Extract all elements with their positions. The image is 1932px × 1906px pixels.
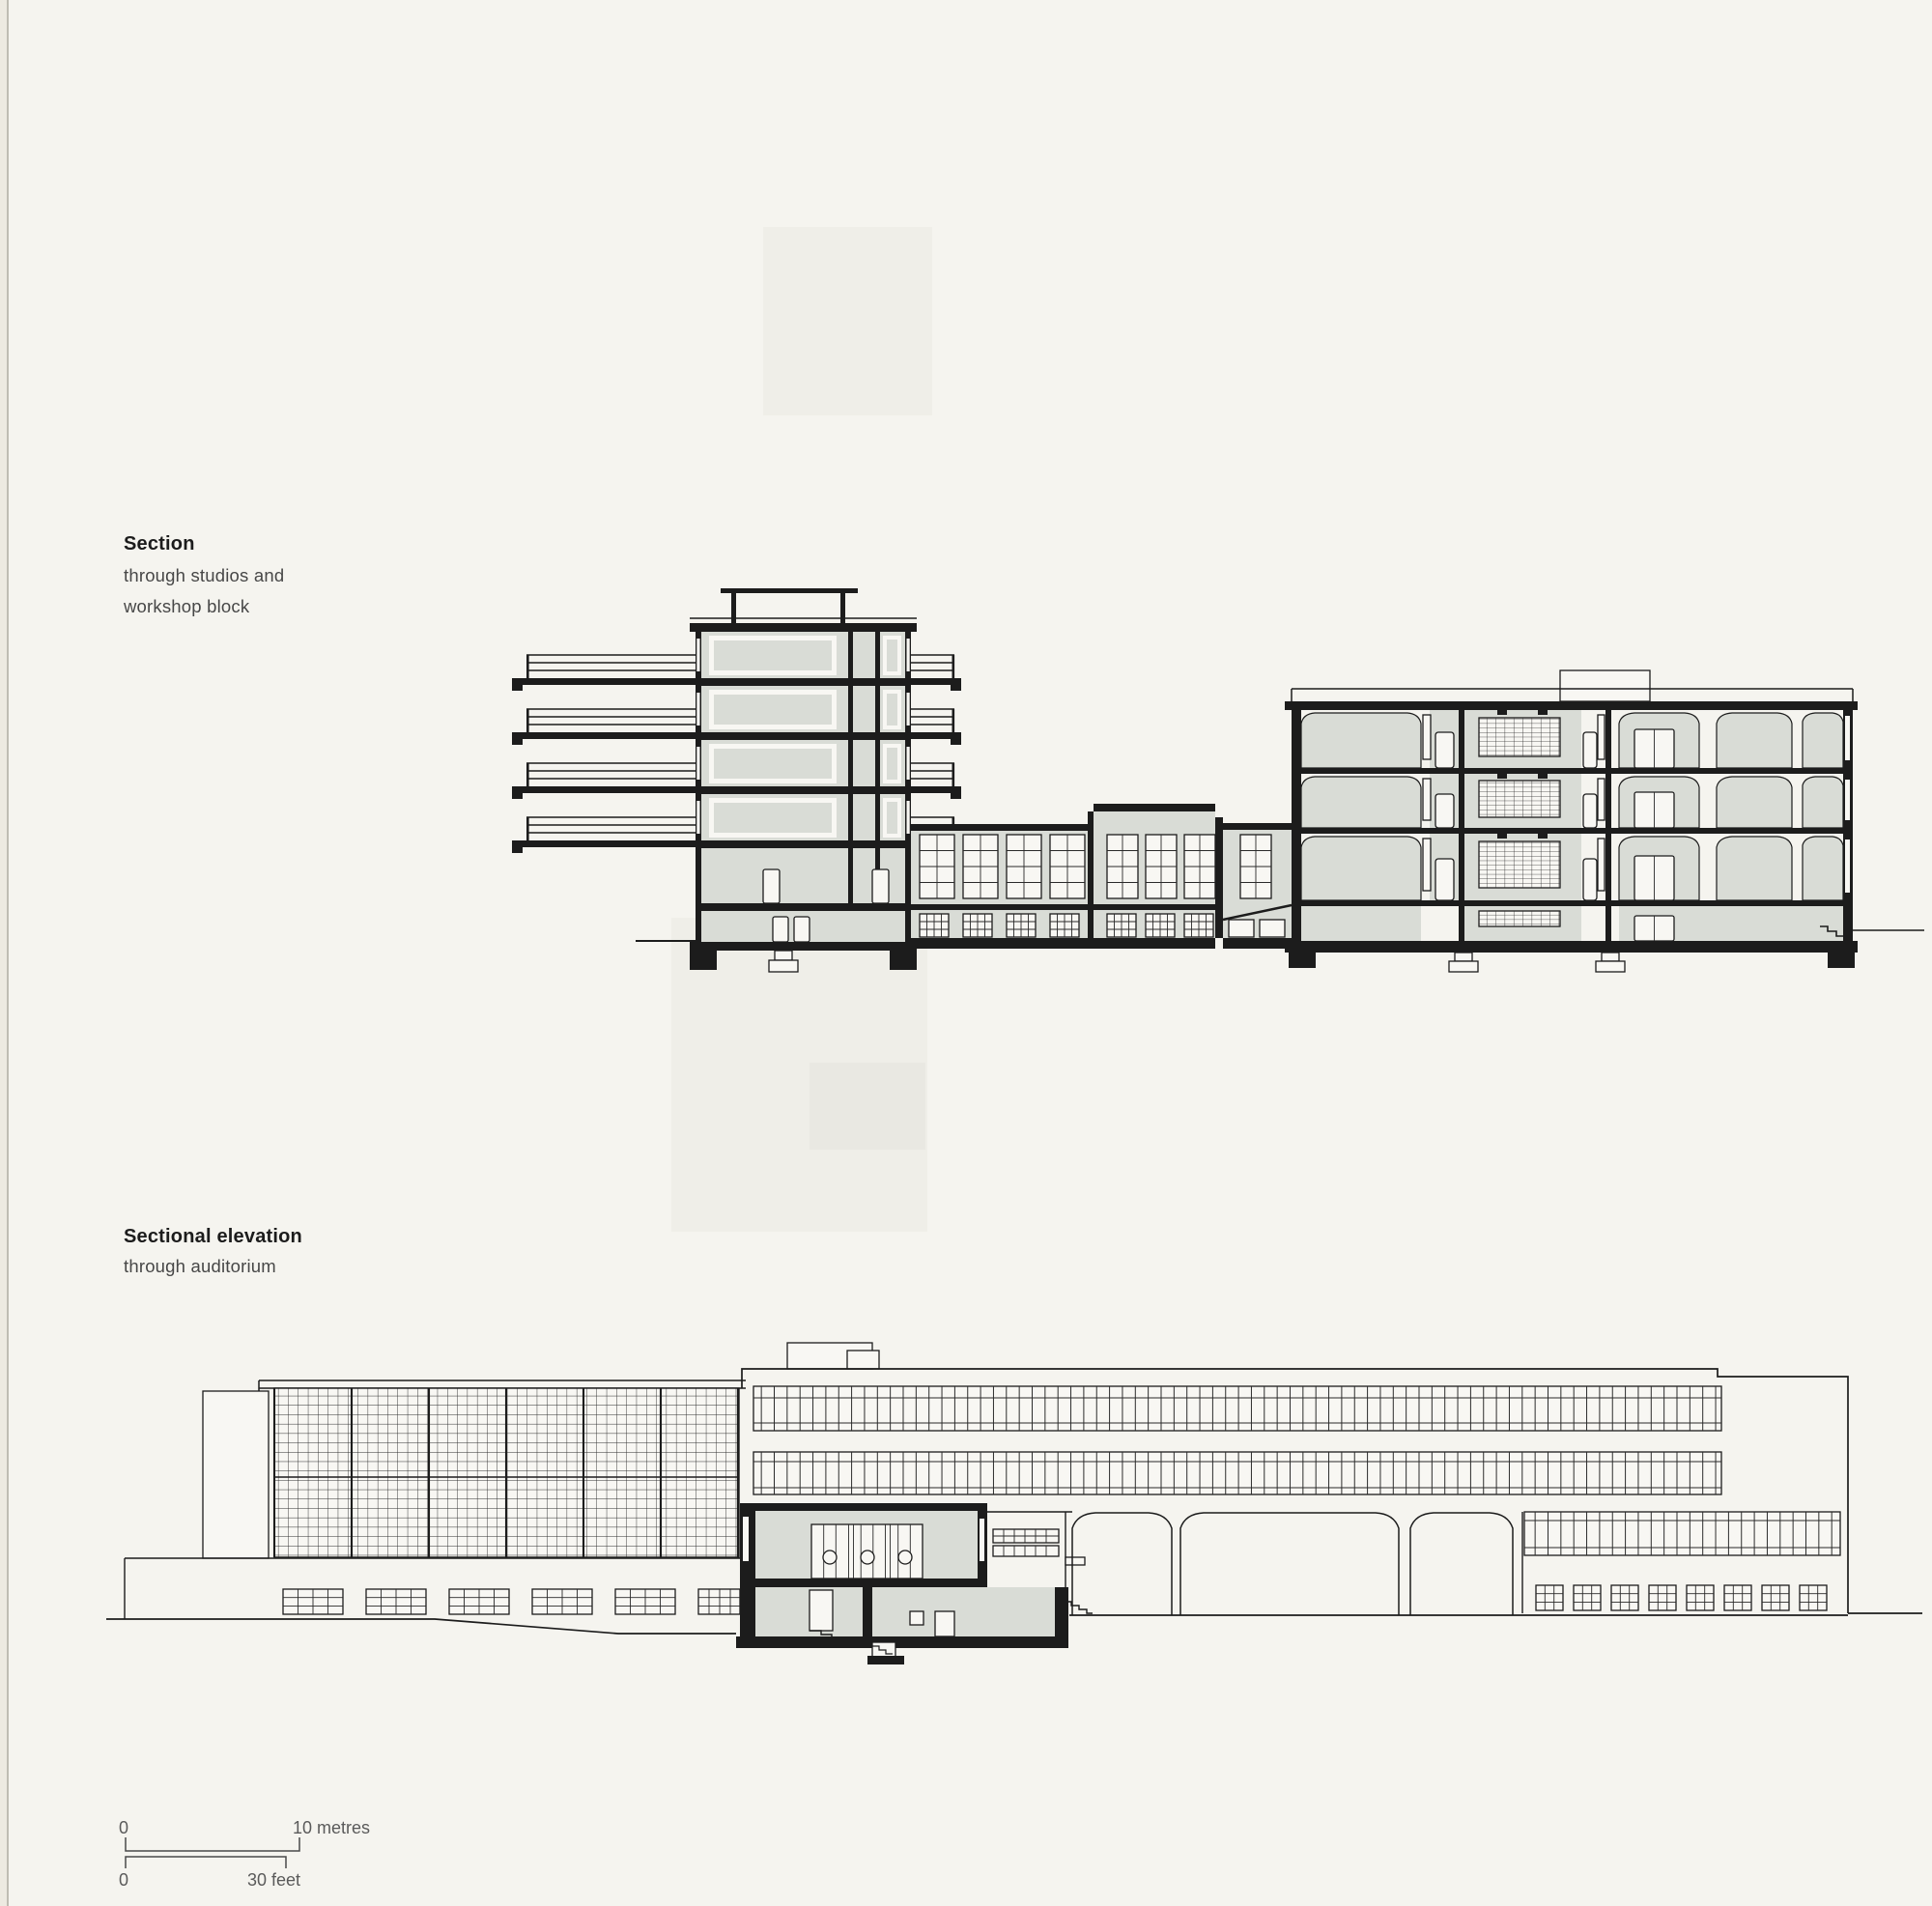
workshop-floor-2 — [1301, 834, 1843, 900]
scale-bar-feet-bracket — [126, 1857, 286, 1868]
scale-feet-zero-label: 0 — [119, 1870, 128, 1891]
section-caption-title: Section — [124, 533, 195, 555]
tower-ground-floor — [696, 911, 911, 942]
auditorium-partition — [811, 1524, 923, 1579]
elevation-caption-title: Sectional elevation — [124, 1226, 302, 1248]
workshop-link-wing — [911, 804, 1292, 949]
scale-bar — [126, 1837, 299, 1868]
scale-metres-zero-label: 0 — [119, 1818, 128, 1838]
architectural-drawings — [0, 0, 1932, 1906]
scale-feet-end-label: 30 feet — [247, 1870, 300, 1891]
section-caption-line1: through studios and — [124, 565, 284, 586]
auditorium-section-cut — [736, 1503, 1068, 1664]
workshop-floor-4 — [1301, 710, 1843, 768]
section-drawing — [512, 588, 1924, 972]
workshop-floor-3 — [1301, 774, 1843, 828]
ground-floor-bays — [1072, 1512, 1522, 1615]
workshop-block — [1285, 670, 1924, 972]
sectional-elevation-drawing — [106, 1343, 1922, 1664]
book-page: Section through studios and workshop blo… — [0, 0, 1932, 1906]
tower-first-floor — [696, 848, 911, 911]
elevation-caption-line1: through auditorium — [124, 1256, 276, 1277]
glass-curtain-wall-block — [106, 1380, 746, 1634]
studio-tower — [512, 588, 961, 972]
section-caption-line2: workshop block — [124, 596, 249, 617]
scale-bar-metres-bracket — [126, 1837, 299, 1851]
elevation-right-base — [1069, 1585, 1922, 1615]
scale-metres-end-label: 10 metres — [293, 1818, 370, 1838]
workshop-floor-1 — [1301, 906, 1843, 941]
